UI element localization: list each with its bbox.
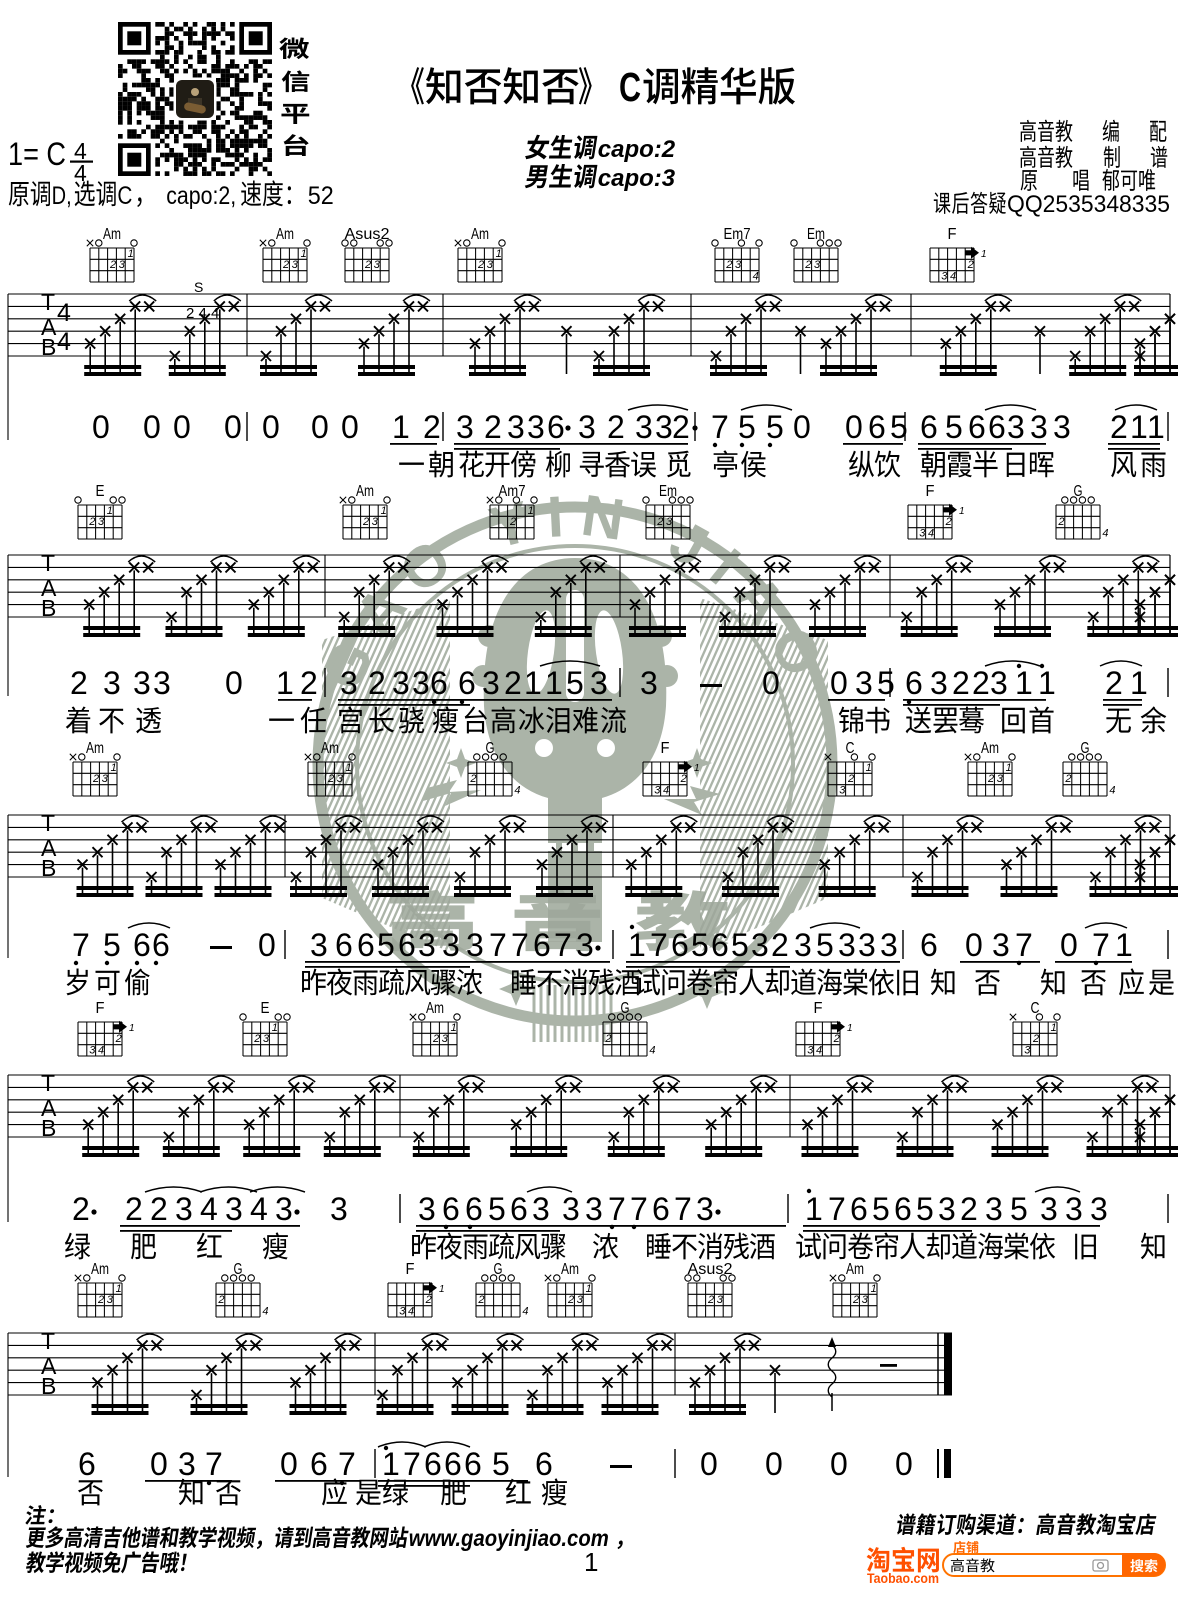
svg-text:2: 2: [607, 409, 625, 445]
svg-text:1= C: 1= C: [8, 136, 66, 172]
svg-text:F: F: [948, 226, 957, 243]
svg-text:3: 3: [466, 927, 484, 963]
svg-text:1: 1: [1006, 762, 1012, 774]
svg-text:3: 3: [1024, 1045, 1031, 1057]
svg-text:3: 3: [814, 259, 821, 271]
svg-text:2: 2: [945, 516, 952, 528]
svg-text:1: 1: [959, 506, 965, 517]
svg-text:3: 3: [337, 773, 344, 785]
svg-text:1: 1: [301, 248, 307, 260]
svg-text:3: 3: [225, 1191, 243, 1227]
svg-text:3: 3: [997, 773, 1004, 785]
svg-text:5: 5: [492, 1446, 510, 1482]
svg-text:2: 2: [327, 773, 334, 785]
svg-text:2: 2: [1105, 665, 1123, 701]
svg-text:QQ2535348335: QQ2535348335: [1007, 191, 1170, 218]
svg-text:2: 2: [987, 773, 994, 785]
svg-text:F: F: [926, 483, 935, 500]
svg-text:1: 1: [694, 763, 700, 774]
svg-text:4: 4: [57, 299, 71, 327]
svg-text:4: 4: [250, 1191, 268, 1227]
svg-text:3: 3: [1065, 1191, 1083, 1227]
svg-text:1: 1: [871, 1283, 877, 1295]
svg-text:1: 1: [545, 665, 563, 701]
svg-text:0: 0: [1060, 927, 1078, 963]
svg-text:6: 6: [464, 1446, 482, 1482]
svg-text:T: T: [41, 1328, 55, 1354]
svg-text:0: 0: [793, 409, 811, 445]
svg-text:B: B: [41, 1373, 56, 1399]
svg-text:3: 3: [412, 665, 430, 701]
svg-text:T: T: [41, 550, 55, 576]
svg-text:2: 2: [504, 665, 522, 701]
svg-text:2: 2: [672, 409, 690, 445]
svg-text:C: C: [117, 182, 132, 210]
svg-text:7: 7: [338, 1446, 356, 1482]
svg-text:5: 5: [872, 1191, 890, 1227]
svg-text:3: 3: [153, 665, 171, 701]
svg-text:2: 2: [833, 1033, 840, 1045]
svg-text:B: B: [41, 334, 56, 360]
svg-text:2: 2: [604, 1033, 611, 1045]
svg-text:B: B: [41, 855, 56, 881]
svg-text:6: 6: [968, 409, 986, 445]
svg-text:2: 2: [1110, 409, 1128, 445]
svg-text:Am: Am: [846, 1261, 864, 1278]
svg-text:3: 3: [590, 665, 608, 701]
svg-text:4: 4: [753, 271, 759, 283]
svg-text:6: 6: [535, 1446, 553, 1482]
svg-text:6: 6: [442, 1191, 460, 1227]
svg-text:2: 2: [362, 516, 369, 528]
svg-text:7: 7: [1015, 927, 1033, 963]
svg-text:Am: Am: [471, 226, 489, 243]
svg-text:3: 3: [696, 1191, 714, 1227]
svg-text:3: 3: [880, 927, 898, 963]
svg-text:3: 3: [175, 1191, 193, 1227]
svg-text:2: 2: [1057, 516, 1064, 528]
svg-text:2 4 4: 2 4 4: [186, 305, 219, 322]
svg-text:1: 1: [107, 505, 113, 517]
svg-text:2: 2: [97, 1294, 104, 1306]
svg-text:Asus2: Asus2: [345, 226, 390, 243]
svg-text:G: G: [1074, 483, 1083, 500]
svg-text:2: 2: [656, 516, 663, 528]
svg-text:7: 7: [511, 927, 529, 963]
svg-text:3: 3: [374, 259, 381, 271]
svg-text:3: 3: [717, 1294, 724, 1306]
svg-text:2: 2: [217, 1294, 224, 1306]
svg-text:Em: Em: [807, 226, 825, 243]
svg-text:52: 52: [308, 182, 334, 210]
svg-text:3: 3: [119, 259, 126, 271]
svg-text:3: 3: [527, 409, 545, 445]
svg-text:2: 2: [282, 259, 289, 271]
svg-text:5: 5: [816, 927, 834, 963]
svg-text:5: 5: [877, 665, 895, 701]
svg-text:4: 4: [816, 1045, 822, 1057]
svg-text:4: 4: [514, 785, 520, 797]
svg-text:1: 1: [847, 1023, 853, 1034]
svg-text:3: 3: [930, 665, 948, 701]
svg-text:1: 1: [1130, 665, 1148, 701]
svg-text:Em: Em: [659, 483, 677, 500]
svg-text:E: E: [96, 483, 105, 500]
svg-text:3: 3: [938, 1191, 956, 1227]
svg-text:6: 6: [444, 1446, 462, 1482]
svg-text:6: 6: [424, 1446, 442, 1482]
svg-text:3: 3: [392, 665, 410, 701]
svg-text:4: 4: [522, 1306, 528, 1318]
svg-text:6: 6: [711, 927, 729, 963]
svg-text:1: 1: [451, 1022, 457, 1034]
svg-text:3: 3: [576, 927, 594, 963]
svg-text:B: B: [41, 595, 56, 621]
svg-text:3: 3: [399, 1306, 406, 1318]
svg-text:1: 1: [111, 762, 117, 774]
svg-text:0: 0: [965, 927, 983, 963]
svg-text:0: 0: [700, 1446, 718, 1482]
svg-text:3: 3: [107, 1294, 114, 1306]
svg-text:2: 2: [300, 665, 318, 701]
svg-text:3: 3: [442, 927, 460, 963]
svg-text:3: 3: [640, 665, 658, 701]
svg-text:3: 3: [985, 1191, 1003, 1227]
svg-text:Am7: Am7: [499, 483, 526, 500]
svg-text:1: 1: [276, 665, 294, 701]
svg-text:2: 2: [423, 409, 441, 445]
svg-text:2: 2: [707, 1294, 714, 1306]
svg-text:3: 3: [102, 773, 109, 785]
svg-text:1: 1: [584, 1547, 598, 1577]
svg-text:3: 3: [990, 665, 1008, 701]
svg-text:capo:2: capo:2: [598, 136, 676, 163]
svg-text:0: 0: [258, 927, 276, 963]
svg-text:3: 3: [456, 409, 474, 445]
svg-text:7: 7: [554, 927, 572, 963]
svg-text:G: G: [621, 1000, 630, 1017]
svg-text:2: 2: [150, 1191, 168, 1227]
svg-text:3: 3: [1030, 409, 1048, 445]
svg-text:0: 0: [143, 409, 161, 445]
svg-text:3: 3: [838, 927, 856, 963]
svg-text:5: 5: [566, 665, 584, 701]
svg-text:2: 2: [125, 1191, 143, 1227]
svg-text:3: 3: [482, 665, 500, 701]
svg-text:5: 5: [103, 927, 121, 963]
svg-text:6: 6: [671, 927, 689, 963]
svg-text:7: 7: [489, 927, 507, 963]
svg-text:1: 1: [496, 248, 502, 260]
svg-text:5: 5: [731, 927, 749, 963]
svg-text:5: 5: [377, 927, 395, 963]
svg-text:2: 2: [364, 259, 371, 271]
svg-text:3: 3: [666, 516, 673, 528]
svg-text:Am: Am: [86, 740, 104, 757]
svg-text:2: 2: [952, 665, 970, 701]
svg-text:1: 1: [1115, 927, 1133, 963]
svg-text:5: 5: [916, 1191, 934, 1227]
svg-text:www.gaoyinjiao.com: www.gaoyinjiao.com: [409, 1525, 609, 1551]
svg-text:4: 4: [408, 1306, 414, 1318]
svg-text:3: 3: [735, 259, 742, 271]
svg-text:2: 2: [477, 1294, 484, 1306]
svg-text:5: 5: [1010, 1191, 1028, 1227]
svg-text:0: 0: [845, 409, 863, 445]
svg-text:3: 3: [98, 516, 105, 528]
svg-text:Am: Am: [91, 1261, 109, 1278]
svg-text:7: 7: [205, 1446, 223, 1482]
svg-text:3: 3: [532, 1191, 550, 1227]
svg-text:3: 3: [1090, 1191, 1108, 1227]
svg-text:0: 0: [762, 665, 780, 701]
svg-text:4: 4: [950, 271, 956, 283]
svg-text:3: 3: [507, 409, 525, 445]
svg-text:G: G: [1081, 740, 1090, 757]
svg-text:Taobao.com: Taobao.com: [867, 1570, 939, 1586]
svg-text:4: 4: [928, 528, 934, 540]
svg-text:0: 0: [225, 665, 243, 701]
svg-text:4: 4: [649, 1045, 655, 1057]
svg-text:2: 2: [567, 1294, 574, 1306]
svg-text:6: 6: [920, 409, 938, 445]
svg-text:3: 3: [442, 1033, 449, 1045]
svg-text:Am: Am: [321, 740, 339, 757]
svg-text:Am: Am: [561, 1261, 579, 1278]
svg-text:3: 3: [635, 409, 653, 445]
svg-text:7: 7: [828, 1191, 846, 1227]
svg-text:3: 3: [1040, 1191, 1058, 1227]
svg-text:4: 4: [663, 785, 669, 797]
svg-text:6: 6: [894, 1191, 912, 1227]
svg-text:3: 3: [807, 1045, 814, 1057]
svg-text:3: 3: [839, 785, 846, 797]
svg-text:7: 7: [403, 1446, 421, 1482]
svg-text:3: 3: [292, 259, 299, 271]
svg-text:7: 7: [72, 927, 90, 963]
svg-text:2: 2: [469, 773, 476, 785]
svg-text:C: C: [846, 740, 855, 757]
svg-text:1: 1: [128, 248, 134, 260]
svg-text:3: 3: [133, 665, 151, 701]
svg-text:D,: D,: [52, 182, 72, 210]
svg-text:1: 1: [628, 927, 646, 963]
svg-text:2: 2: [368, 665, 386, 701]
svg-text:6: 6: [152, 927, 170, 963]
svg-text:2: 2: [92, 773, 99, 785]
svg-text:3: 3: [585, 1191, 603, 1227]
svg-text:C: C: [619, 64, 641, 110]
svg-text:4: 4: [1102, 528, 1108, 540]
svg-text:0: 0: [341, 409, 359, 445]
svg-text:3: 3: [992, 927, 1010, 963]
svg-text:3: 3: [178, 1446, 196, 1482]
svg-text:2: 2: [70, 665, 88, 701]
svg-text:E: E: [261, 1000, 270, 1017]
svg-text:3: 3: [103, 665, 121, 701]
svg-text:0: 0: [280, 1446, 298, 1482]
svg-text:3: 3: [858, 927, 876, 963]
svg-text:3: 3: [655, 409, 673, 445]
svg-text:6: 6: [533, 927, 551, 963]
svg-text:F: F: [96, 1000, 105, 1017]
svg-text:F: F: [814, 1000, 823, 1017]
svg-text:5: 5: [738, 409, 756, 445]
svg-text:7: 7: [608, 1191, 626, 1227]
svg-text:3: 3: [340, 665, 358, 701]
svg-text:3: 3: [372, 516, 379, 528]
svg-text:2: 2: [852, 1294, 859, 1306]
svg-text:2: 2: [725, 259, 732, 271]
svg-text:S: S: [194, 279, 203, 295]
svg-text:Am: Am: [426, 1000, 444, 1017]
svg-text:2: 2: [109, 259, 116, 271]
svg-text:6: 6: [465, 1191, 483, 1227]
svg-text:Em7: Em7: [724, 226, 751, 243]
svg-text:7: 7: [674, 1191, 692, 1227]
svg-text:4: 4: [262, 1306, 268, 1318]
svg-text:G: G: [494, 1261, 503, 1278]
svg-text:3: 3: [855, 665, 873, 701]
svg-text:6: 6: [850, 1191, 868, 1227]
svg-text:7: 7: [1092, 927, 1110, 963]
svg-text:1: 1: [381, 505, 387, 517]
svg-text:1: 1: [1015, 665, 1033, 701]
svg-text:1: 1: [866, 762, 872, 774]
svg-text:7: 7: [650, 927, 668, 963]
svg-text:2: 2: [477, 259, 484, 271]
svg-text:6: 6: [398, 927, 416, 963]
svg-text:3: 3: [330, 1191, 348, 1227]
svg-text:0: 0: [173, 409, 191, 445]
svg-text:2: 2: [1064, 773, 1071, 785]
svg-text:1: 1: [1051, 1022, 1057, 1034]
svg-text:0: 0: [830, 665, 848, 701]
svg-text:Am: Am: [276, 226, 294, 243]
svg-text:5: 5: [945, 409, 963, 445]
svg-text:0: 0: [765, 1446, 783, 1482]
svg-text:3: 3: [89, 1045, 96, 1057]
svg-text:2: 2: [72, 1191, 90, 1227]
svg-text:1: 1: [1038, 665, 1056, 701]
svg-text:6: 6: [78, 1446, 96, 1482]
svg-text:3: 3: [418, 927, 436, 963]
svg-text:Am: Am: [103, 226, 121, 243]
svg-text:3: 3: [751, 927, 769, 963]
svg-text:6: 6: [310, 1446, 328, 1482]
svg-text:1: 1: [586, 1283, 592, 1295]
svg-text:2: 2: [967, 259, 974, 271]
svg-text:T: T: [41, 1070, 55, 1096]
svg-text:0: 0: [895, 1446, 913, 1482]
svg-text:2: 2: [432, 1033, 439, 1045]
svg-text:capo:2,: capo:2,: [166, 182, 236, 210]
svg-text:2: 2: [960, 1191, 978, 1227]
svg-text:2: 2: [1032, 1033, 1039, 1045]
svg-text:6: 6: [868, 409, 886, 445]
svg-text:3: 3: [1053, 409, 1071, 445]
svg-text:0: 0: [150, 1446, 168, 1482]
svg-text:6: 6: [652, 1191, 670, 1227]
svg-text:3: 3: [941, 271, 948, 283]
svg-text:0: 0: [92, 409, 110, 445]
svg-text:6: 6: [458, 665, 476, 701]
svg-text:1: 1: [116, 1283, 122, 1295]
svg-text:1: 1: [1130, 409, 1148, 445]
svg-text:C: C: [1031, 1000, 1040, 1017]
svg-text:2: 2: [847, 773, 854, 785]
svg-text:1: 1: [981, 249, 987, 260]
svg-text:2: 2: [680, 773, 687, 785]
svg-text:1: 1: [439, 1284, 445, 1295]
svg-text:1: 1: [392, 409, 410, 445]
svg-text:6: 6: [920, 927, 938, 963]
svg-text:7: 7: [630, 1191, 648, 1227]
svg-text:3: 3: [310, 927, 328, 963]
svg-text:0: 0: [311, 409, 329, 445]
svg-text:0: 0: [224, 409, 242, 445]
svg-text:5: 5: [766, 409, 784, 445]
svg-text:2: 2: [88, 516, 95, 528]
svg-text:G: G: [234, 1261, 243, 1278]
svg-text:1: 1: [346, 762, 352, 774]
svg-text:B: B: [41, 1115, 56, 1141]
svg-text:3: 3: [919, 528, 926, 540]
svg-text:1: 1: [528, 505, 534, 517]
svg-text:3: 3: [418, 1191, 436, 1227]
svg-text:G: G: [486, 740, 495, 757]
svg-text:6: 6: [905, 665, 923, 701]
svg-text:4: 4: [98, 1045, 104, 1057]
svg-text:5: 5: [691, 927, 709, 963]
svg-text:6: 6: [510, 1191, 528, 1227]
svg-text:3: 3: [562, 1191, 580, 1227]
svg-text:6: 6: [335, 927, 353, 963]
svg-text:1: 1: [129, 1023, 135, 1034]
svg-text:2: 2: [484, 409, 502, 445]
svg-text:6: 6: [133, 927, 151, 963]
svg-text:3: 3: [578, 409, 596, 445]
svg-text:3: 3: [263, 1033, 270, 1045]
svg-text:6: 6: [430, 665, 448, 701]
svg-text:F: F: [406, 1261, 415, 1278]
svg-text:2: 2: [425, 1294, 432, 1306]
svg-text:6: 6: [547, 409, 565, 445]
svg-text:3: 3: [794, 927, 812, 963]
svg-text:2: 2: [972, 665, 990, 701]
svg-text:5: 5: [488, 1191, 506, 1227]
svg-text:6: 6: [357, 927, 375, 963]
svg-text:4: 4: [200, 1191, 218, 1227]
svg-text:2: 2: [771, 927, 789, 963]
svg-text:4: 4: [1109, 785, 1115, 797]
svg-text:1: 1: [1147, 409, 1165, 445]
svg-text:4: 4: [57, 328, 71, 356]
svg-text:6: 6: [988, 409, 1006, 445]
svg-text:1: 1: [272, 1022, 278, 1034]
svg-text:capo:3: capo:3: [598, 165, 676, 192]
svg-text:T: T: [41, 810, 55, 836]
svg-text:1: 1: [524, 665, 542, 701]
svg-text:3: 3: [862, 1294, 869, 1306]
svg-text:0: 0: [830, 1446, 848, 1482]
svg-text:1: 1: [805, 1191, 823, 1227]
svg-text:3: 3: [1007, 409, 1025, 445]
svg-text:7: 7: [711, 409, 729, 445]
svg-text:3: 3: [654, 785, 661, 797]
svg-text:Am: Am: [981, 740, 999, 757]
svg-text:3: 3: [487, 259, 494, 271]
